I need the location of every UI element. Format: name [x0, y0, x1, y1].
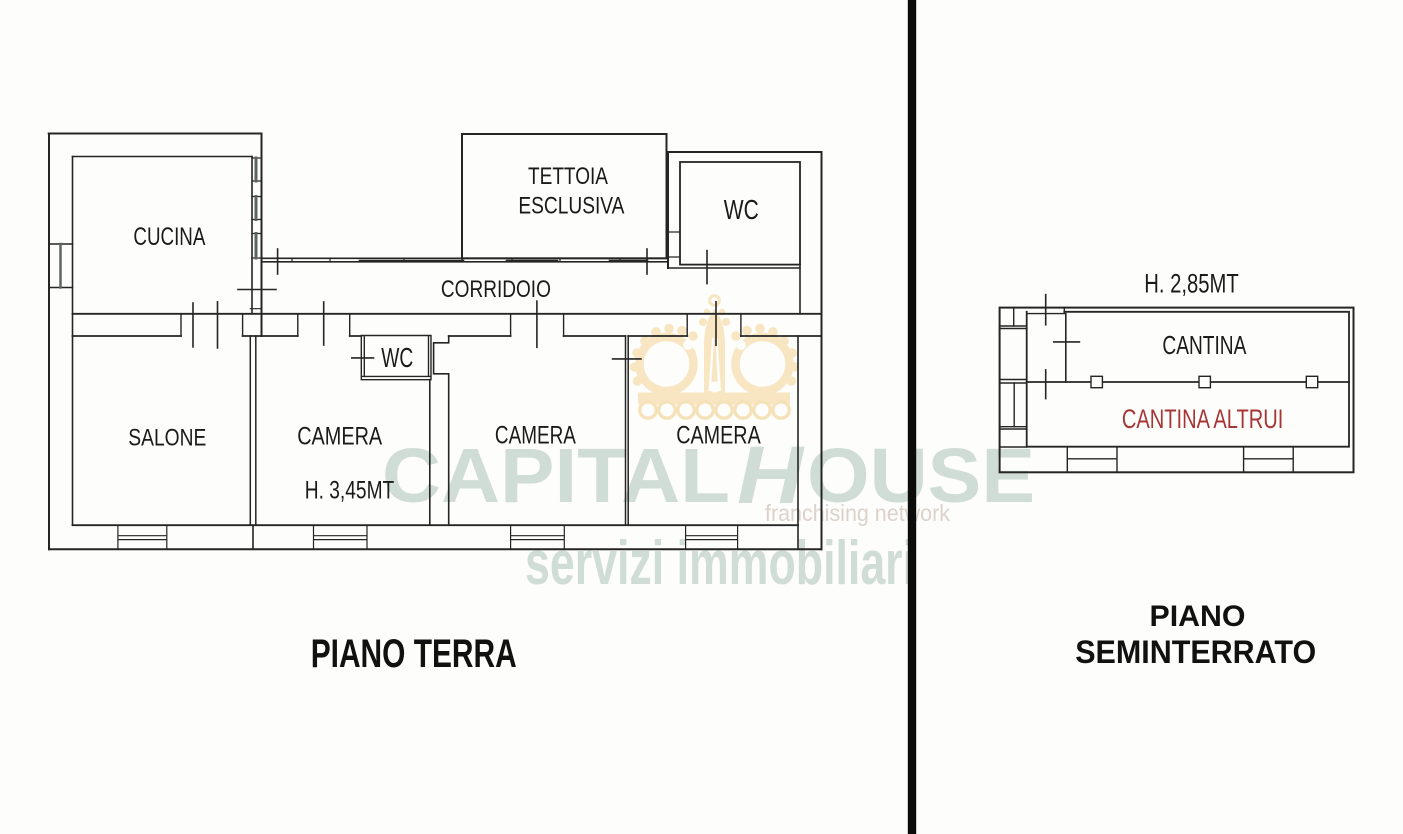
svg-text:CAMERA: CAMERA	[495, 422, 576, 450]
svg-text:SALONE: SALONE	[128, 425, 206, 452]
svg-text:ESCLUSIVA: ESCLUSIVA	[518, 193, 624, 220]
svg-text:CAMERA: CAMERA	[676, 422, 761, 450]
svg-text:TETTOIA: TETTOIA	[528, 163, 608, 190]
svg-text:franchising network: franchising network	[765, 500, 950, 526]
svg-text:CORRIDOIO: CORRIDOIO	[441, 276, 551, 303]
svg-text:PIANO TERRA: PIANO TERRA	[311, 632, 517, 676]
svg-text:CANTINA ALTRUI: CANTINA ALTRUI	[1122, 404, 1284, 434]
svg-text:SEMINTERRATO: SEMINTERRATO	[1075, 634, 1316, 670]
svg-text:CANTINA: CANTINA	[1162, 330, 1246, 360]
svg-text:H. 2,85MT: H. 2,85MT	[1144, 269, 1239, 299]
svg-text:PIANO: PIANO	[1150, 600, 1246, 633]
svg-text:WC: WC	[724, 194, 759, 225]
svg-text:CAMERA: CAMERA	[297, 423, 382, 451]
svg-text:WC: WC	[381, 342, 413, 373]
svg-text:CUCINA: CUCINA	[133, 223, 205, 251]
svg-text:H. 3,45MT: H. 3,45MT	[305, 477, 395, 505]
